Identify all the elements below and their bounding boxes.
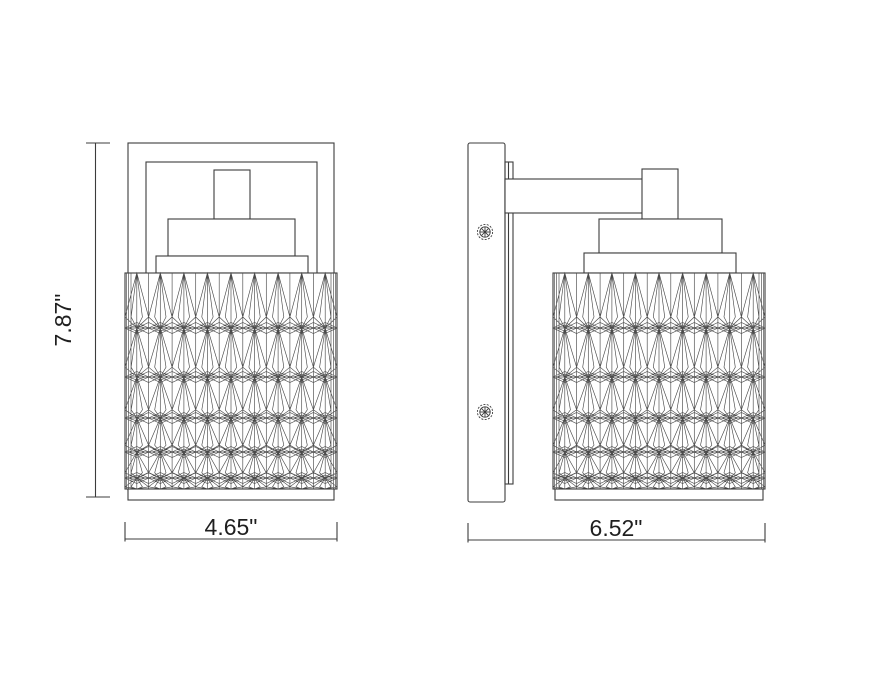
screw-icon xyxy=(477,224,492,239)
canopy-tier-upper-side xyxy=(599,219,722,253)
mounting-arm-side xyxy=(505,179,650,213)
height-dimension-label: 7.87" xyxy=(50,294,76,347)
depth-dimension-label: 6.52" xyxy=(590,515,643,541)
width-dimension-label: 4.65" xyxy=(205,514,258,540)
side-view xyxy=(468,143,765,502)
shade-rim-side xyxy=(555,489,763,500)
front-view xyxy=(125,143,337,500)
sconce-dimension-diagram: 7.87" 4.65" 6.52" xyxy=(0,0,875,700)
stem-side xyxy=(642,169,678,219)
shade-rim-front xyxy=(128,489,334,500)
height-dimension xyxy=(86,143,110,497)
canopy-tier-upper-front xyxy=(168,219,295,256)
canopy-tier-lower-side xyxy=(584,253,736,273)
screw-icon xyxy=(477,404,492,419)
mounting-screws xyxy=(477,224,492,419)
stem-front xyxy=(214,170,250,219)
technical-drawing-svg: 7.87" 4.65" 6.52" xyxy=(0,0,875,700)
wall-plate-side xyxy=(468,143,505,502)
canopy-tier-lower-front xyxy=(156,256,308,273)
